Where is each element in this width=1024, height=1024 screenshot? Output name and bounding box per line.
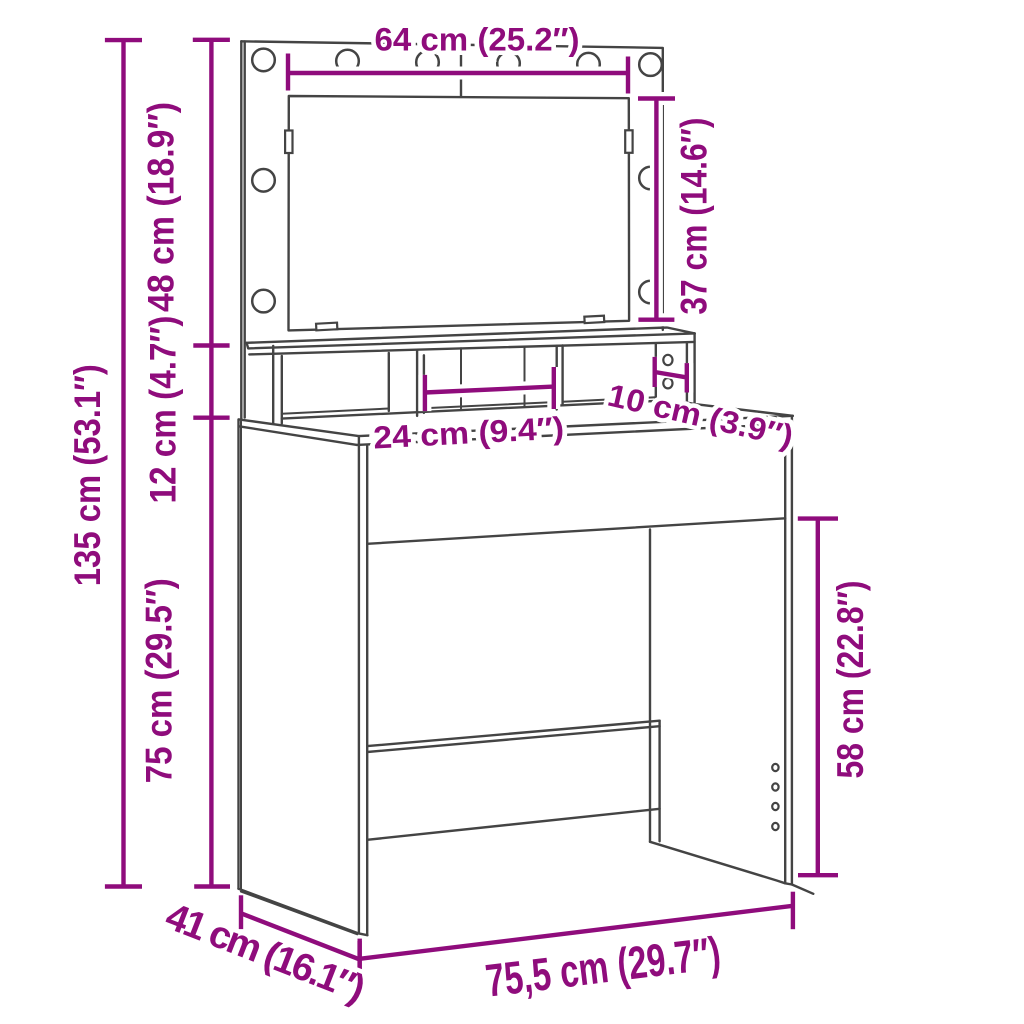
svg-text:135 cm (53.1″): 135 cm (53.1″) (67, 364, 108, 586)
svg-text:58 cm (22.8″): 58 cm (22.8″) (830, 581, 871, 779)
svg-text:12 cm (4.7″): 12 cm (4.7″) (142, 316, 183, 504)
svg-text:64 cm (25.2″): 64 cm (25.2″) (375, 21, 580, 57)
svg-text:75 cm (29.5″): 75 cm (29.5″) (139, 578, 180, 783)
svg-text:37 cm (14.6″): 37 cm (14.6″) (674, 118, 715, 315)
svg-text:48 cm (18.9″): 48 cm (18.9″) (141, 102, 182, 312)
